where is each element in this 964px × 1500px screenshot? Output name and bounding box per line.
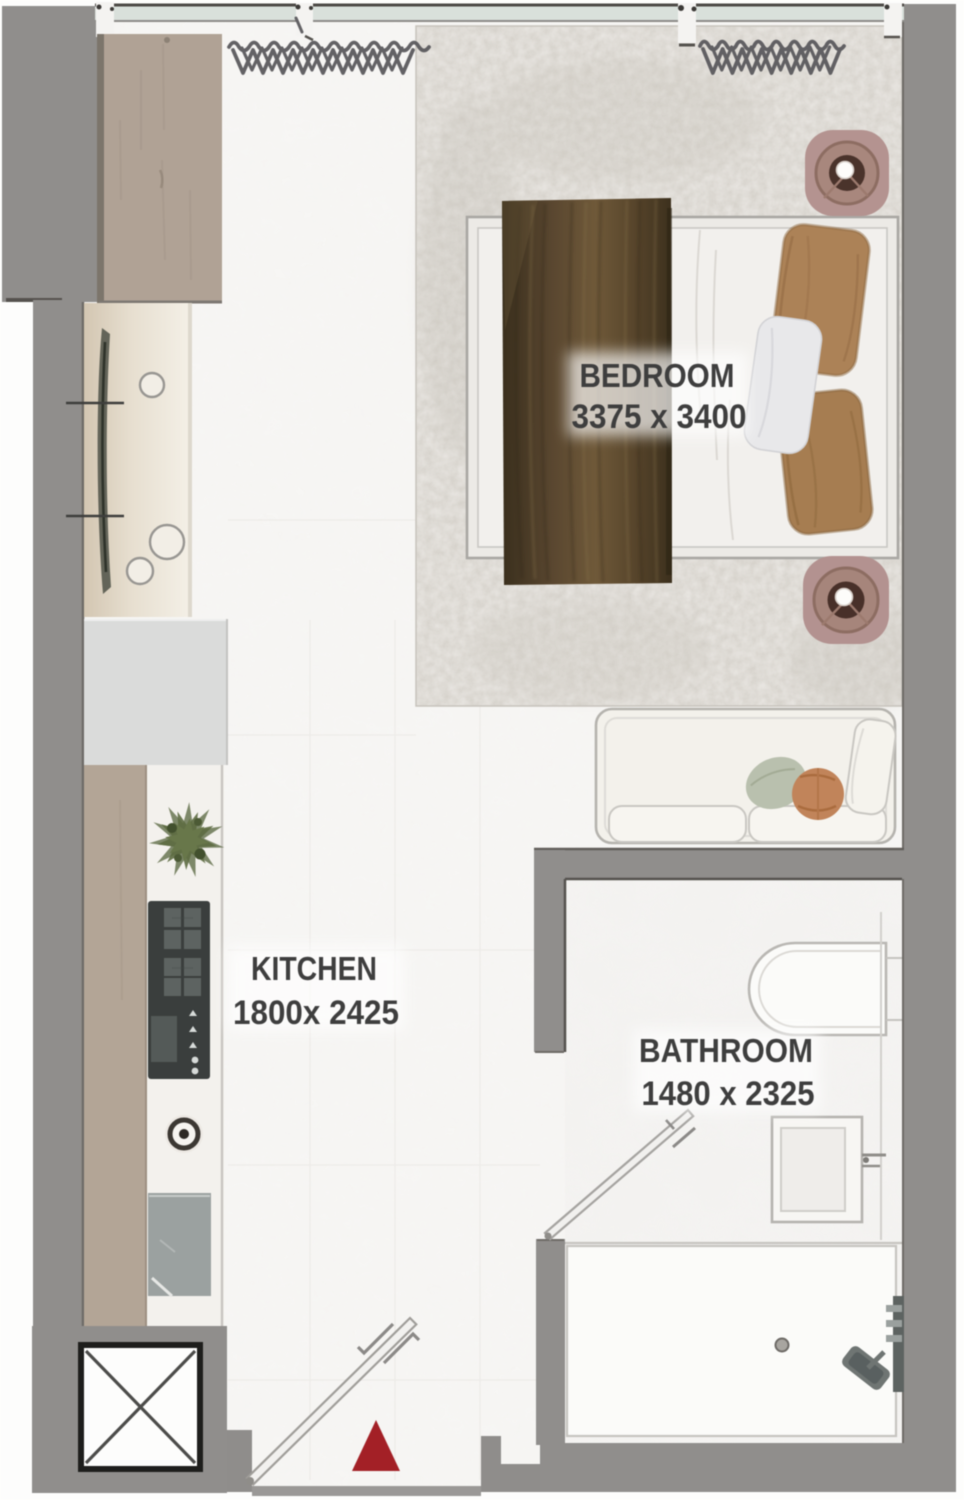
svg-text:KITCHEN: KITCHEN — [251, 950, 377, 987]
svg-text:1800x 2425: 1800x 2425 — [233, 994, 399, 1032]
svg-text:BATHROOM: BATHROOM — [639, 1032, 813, 1069]
svg-text:3375 x 3400: 3375 x 3400 — [572, 398, 747, 436]
svg-text:1480 x 2325: 1480 x 2325 — [642, 1075, 815, 1113]
svg-text:BEDROOM: BEDROOM — [580, 357, 735, 394]
